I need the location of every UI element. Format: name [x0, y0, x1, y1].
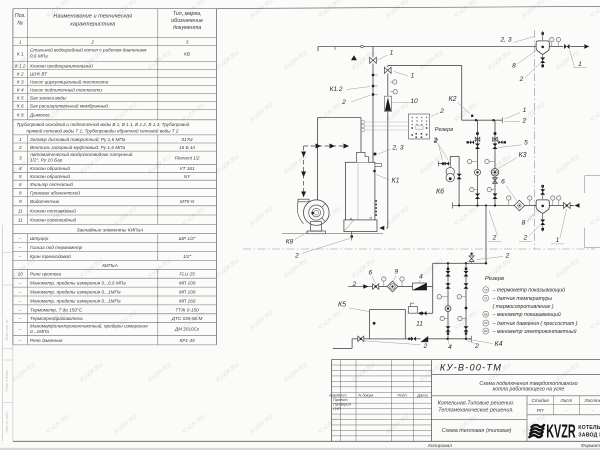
svg-text:ДМ 2010Сг: ДМ 2010Сг	[174, 327, 200, 332]
svg-text:KVZR.RU: KVZR.RU	[555, 49, 581, 72]
svg-text:1: 1	[556, 237, 560, 244]
svg-text:2: 2	[352, 281, 357, 288]
svg-text:0,6 МПа: 0,6 МПа	[30, 53, 48, 58]
svg-text:К1: К1	[391, 178, 399, 185]
svg-text:5: 5	[524, 140, 528, 147]
svg-text:Резерв: Резерв	[435, 127, 453, 133]
svg-text:KVZR.RU: KVZR.RU	[487, 153, 513, 176]
svg-text:KVZR.RU: KVZR.RU	[283, 257, 309, 280]
svg-text:10: 10	[410, 98, 418, 105]
svg-text:3: 3	[186, 39, 189, 44]
svg-text:VT 161: VT 161	[180, 166, 196, 171]
svg-text:2: 2	[18, 145, 22, 150]
svg-text:N докум: N докум	[358, 392, 373, 397]
svg-text:6: 6	[368, 270, 372, 277]
svg-text:1: 1	[390, 50, 394, 57]
svg-text:К6: К6	[436, 189, 444, 196]
svg-text:обозначение: обозначение	[171, 18, 203, 24]
svg-text:– термометр показывающий: – термометр показывающий	[492, 287, 566, 294]
svg-text:KVZR.RU: KVZR.RU	[589, 309, 600, 332]
svg-text:котла работающего на угле: котла работающего на угле	[493, 387, 565, 393]
svg-text:5: 5	[19, 174, 22, 179]
svg-text:KVZR.RU: KVZR.RU	[453, 0, 479, 20]
svg-text:KVZR: KVZR	[546, 421, 576, 442]
svg-text:Закладные элементы КИПиА: Закладные элементы КИПиА	[77, 227, 144, 233]
svg-text:Клапан предохранительный: Клапан предохранительный	[30, 62, 93, 68]
svg-text:МП 100: МП 100	[179, 281, 196, 286]
svg-text:KVZR.RU: KVZR.RU	[317, 413, 343, 436]
svg-text:NY: NY	[184, 174, 191, 179]
svg-text:МП 160: МП 160	[179, 298, 196, 303]
svg-text:KVZR.RU: KVZR.RU	[521, 0, 547, 20]
svg-text:2: 2	[523, 235, 528, 242]
svg-text:1: 1	[411, 73, 415, 80]
svg-text:KVZR.RU: KVZR.RU	[249, 101, 275, 124]
svg-text:Стадия: Стадия	[532, 398, 550, 403]
svg-text:2: 2	[433, 138, 438, 145]
svg-text:KVZR.RU: KVZR.RU	[45, 413, 71, 436]
svg-text:К 1.2: К 1.2	[15, 63, 26, 68]
svg-text:Термометр, Т до 150°С: Термометр, Т до 150°С	[30, 307, 83, 312]
svg-text:1/2": 1/2"	[183, 254, 192, 259]
svg-text:KVZR.RU: KVZR.RU	[0, 205, 3, 228]
svg-text:Манометр, пределы измерения: Манометр, пределы измерения 0...1МПа	[30, 289, 121, 294]
svg-text:KVZR.RU: KVZR.RU	[317, 101, 343, 124]
svg-text:ШР 1/2": ШР 1/2"	[179, 236, 196, 241]
svg-text:– датчик температуры: – датчик температуры	[492, 296, 553, 302]
svg-text:9: 9	[394, 269, 398, 276]
svg-text:Стальной водогрейный котел с р: Стальной водогрейный котел с рабочим дав…	[30, 47, 147, 53]
svg-text:–: –	[18, 289, 22, 294]
svg-text:ШУК ВТ: ШУК ВТ	[30, 71, 48, 76]
svg-text:KVZR.RU: KVZR.RU	[181, 413, 207, 436]
svg-text:Листов: Листов	[583, 398, 600, 403]
svg-text:Гильза под термометр: Гильза под термометр	[30, 245, 83, 250]
svg-text:Резерв: Резерв	[485, 276, 504, 282]
svg-text:2: 2	[519, 76, 524, 83]
svg-text:Штуцер: Штуцер	[30, 236, 49, 241]
svg-text:Бак расширительный мембранный: Бак расширительный мембранный	[30, 102, 108, 108]
svg-text:ДТС 035-50 М: ДТС 035-50 М	[171, 316, 203, 321]
svg-text:9: 9	[19, 199, 22, 204]
svg-text:Подп. и дата: Подп. и дата	[5, 370, 9, 391]
svg-text:KVZR.RU: KVZR.RU	[147, 361, 173, 384]
svg-text:KVZR.RU: KVZR.RU	[419, 153, 445, 176]
svg-text:2, 3: 2, 3	[392, 145, 404, 152]
svg-text:KVZR.RU: KVZR.RU	[79, 361, 105, 384]
svg-text:4: 4	[19, 166, 22, 171]
svg-text:Кран трехходовой: Кран трехходовой	[30, 253, 71, 259]
svg-text:1: 1	[523, 107, 527, 114]
svg-text:2: 2	[492, 235, 497, 242]
svg-text:К 5: К 5	[17, 95, 24, 100]
svg-text:Схема тепловая (типовая): Схема тепловая (типовая)	[442, 428, 512, 434]
svg-text:Затвор дисковый поворотный; Р: Затвор дисковый поворотный; Ру 1,6 МПа	[30, 136, 126, 142]
svg-text:ТТЖ 0-150: ТТЖ 0-150	[175, 307, 199, 312]
svg-text:KVZR.RU: KVZR.RU	[317, 0, 343, 20]
svg-text:KVZR.RU: KVZR.RU	[385, 0, 411, 20]
svg-text:КОТЕЛЬНЫ: КОТЕЛЬНЫ	[578, 425, 600, 431]
svg-text:2: 2	[90, 39, 94, 44]
svg-text:Клапан обратный: Клапан обратный	[30, 173, 70, 179]
svg-text:КР1-35: КР1-35	[179, 338, 195, 343]
svg-text:Тип, марка,: Тип, марка,	[173, 11, 202, 17]
svg-text:KVZR.RU: KVZR.RU	[283, 361, 309, 384]
svg-text:– манометр показывающий: – манометр показывающий	[492, 311, 561, 318]
svg-text:К4: К4	[494, 341, 502, 348]
svg-text:№: №	[17, 20, 23, 26]
svg-text:2: 2	[522, 118, 527, 125]
svg-text:–: –	[18, 338, 22, 343]
svg-text:Манометрэлектроконтактный, пр: Манометрэлектроконтактный, пределы измер…	[30, 322, 148, 328]
svg-text:KVZR.RU: KVZR.RU	[0, 101, 3, 124]
svg-text:Манометр, пределы измерения: Манометр, пределы измерения 0...0,6 МПа	[30, 281, 126, 286]
svg-text:– манометр электроконтактный: – манометр электроконтактный	[492, 328, 577, 335]
svg-text:2: 2	[341, 99, 346, 106]
svg-text:Подп.: Подп.	[397, 392, 407, 397]
svg-text:KVZR.RU: KVZR.RU	[215, 153, 241, 176]
svg-text:KVZR.RU: KVZR.RU	[351, 361, 377, 384]
svg-text:Клапан обратный: Клапан обратный	[30, 165, 70, 171]
svg-text:KVZR.RU: KVZR.RU	[351, 257, 377, 280]
svg-text:ГИП: ГИП	[333, 406, 341, 411]
svg-text:–: –	[18, 307, 22, 312]
svg-text:МЕ: МЕ	[484, 329, 488, 333]
svg-text:Водосчетчик: Водосчетчик	[30, 199, 60, 204]
svg-text:РП: РП	[537, 408, 544, 414]
svg-text:KVZR.RU: KVZR.RU	[0, 0, 3, 20]
svg-text:–: –	[18, 254, 22, 259]
svg-text:11: 11	[416, 321, 423, 328]
svg-text:Манометр, пределы измерения: Манометр, пределы измерения 0...1МПа	[30, 298, 121, 303]
svg-text:К 6: К 6	[17, 103, 24, 108]
svg-text:Термопреобразователь: Термопреобразователь	[30, 316, 84, 321]
svg-text:Грязевик абонентский: Грязевик абонентский	[30, 189, 80, 195]
svg-text:К 1: К 1	[17, 51, 24, 56]
svg-text:–: –	[18, 316, 22, 321]
svg-text:KVZR.RU: KVZR.RU	[181, 205, 207, 228]
svg-text:4: 4	[448, 344, 452, 351]
svg-text:Тепломеханические решения.: Тепломеханические решения.	[438, 407, 513, 413]
svg-text:–: –	[18, 245, 22, 250]
svg-text:8: 8	[19, 190, 22, 195]
svg-text:KVZR.RU: KVZR.RU	[589, 205, 600, 228]
svg-text:KVZR.RU: KVZR.RU	[283, 49, 309, 72]
svg-text:Наименование и техническая: Наименование и техническая	[53, 14, 132, 20]
svg-text:KVZR.RU: KVZR.RU	[249, 413, 275, 436]
svg-text:характеристика: характеристика	[69, 22, 115, 28]
svg-text:Flexvent 1/2: Flexvent 1/2	[175, 156, 200, 161]
svg-text:ТВ: ТВ	[484, 288, 488, 292]
svg-text:К3: К3	[518, 152, 526, 159]
svg-text:К 3: К 3	[17, 79, 24, 84]
svg-text:документа: документа	[173, 25, 201, 31]
svg-text:KVZR.RU: KVZR.RU	[249, 0, 275, 20]
svg-text:6: 6	[19, 182, 22, 187]
svg-text:Лист: Лист	[559, 398, 572, 403]
svg-text:KVZR.RU: KVZR.RU	[249, 309, 275, 332]
svg-text:KVZR.RU: KVZR.RU	[419, 49, 445, 72]
svg-text:15 Б 1п: 15 Б 1п	[179, 145, 195, 150]
svg-text:ТЕ: ТЕ	[484, 296, 488, 300]
svg-text:– датчик давления ( прессост: – датчик давления ( прессостат )	[492, 321, 578, 327]
svg-text:2, 3: 2, 3	[500, 37, 512, 44]
svg-text:2: 2	[505, 253, 510, 260]
svg-text:Клапан соленоидный: Клапан соленоидный	[30, 217, 77, 223]
svg-text:KVZR.RU: KVZR.RU	[215, 361, 241, 384]
svg-text:Фильтр сетчатый: Фильтр сетчатый	[30, 181, 73, 187]
svg-text:11: 11	[18, 218, 23, 223]
svg-text:KVZR.RU: KVZR.RU	[113, 205, 139, 228]
svg-text:Реле протока: Реле протока	[30, 272, 62, 277]
svg-text:8: 8	[522, 220, 526, 227]
svg-text:KVZR.RU: KVZR.RU	[215, 257, 241, 280]
svg-text:KVZR.RU: KVZR.RU	[181, 101, 207, 124]
svg-text:Поз.: Поз.	[15, 13, 26, 19]
svg-text:11: 11	[18, 208, 23, 213]
svg-text:2: 2	[294, 253, 299, 260]
svg-text:KVZR.RU: KVZR.RU	[113, 413, 139, 436]
svg-text:KVZR.RU: KVZR.RU	[147, 49, 173, 72]
svg-text:2: 2	[423, 343, 428, 350]
svg-text:KVZR.RU: KVZR.RU	[487, 49, 513, 72]
svg-text:К5: К5	[338, 302, 346, 309]
svg-text:К1.2: К1.2	[329, 86, 342, 93]
svg-text:( термосопротивление ): ( термосопротивление )	[493, 304, 554, 310]
svg-text:-: -	[566, 409, 568, 414]
svg-text:0...1МПа: 0...1МПа	[30, 329, 49, 334]
svg-text:4: 4	[419, 274, 423, 281]
svg-text:КУ-В-00-ТМ: КУ-В-00-ТМ	[440, 362, 502, 372]
svg-text:К2: К2	[448, 96, 456, 103]
svg-text:KVZR.RU: KVZR.RU	[215, 49, 241, 72]
svg-text:1: 1	[578, 61, 582, 68]
svg-text:К8: К8	[286, 239, 294, 246]
svg-text:МТК-N: МТК-N	[180, 199, 195, 204]
svg-text:Вентиль запорный муфтовый; Ру: Вентиль запорный муфтовый; Ру 1,6 МПа	[30, 144, 126, 150]
svg-text:KVZR.RU: KVZR.RU	[385, 413, 411, 436]
svg-text:KVZR.RU: KVZR.RU	[555, 153, 581, 176]
svg-text:прямой сетевой воды Т 1; Труб: прямой сетевой воды Т 1; Трубопроводы об…	[27, 127, 179, 133]
svg-text:2: 2	[474, 343, 479, 350]
svg-text:KVZR.RU: KVZR.RU	[555, 257, 581, 280]
svg-text:Автоматический воздухоотводчи: Автоматический воздухоотводчик латунный	[29, 151, 133, 157]
svg-text:Клапан поплавковый: Клапан поплавковый	[30, 207, 76, 213]
svg-text:Бак запаса воды: Бак запаса воды	[30, 95, 67, 100]
svg-text:Инв. № подл.: Инв. № подл.	[5, 411, 9, 432]
svg-text:–: –	[18, 281, 22, 286]
svg-text:10: 10	[18, 272, 24, 277]
svg-text:МП 100: МП 100	[179, 289, 196, 294]
svg-text:2: 2	[439, 108, 444, 115]
svg-text:KVZR.RU: KVZR.RU	[11, 361, 37, 384]
svg-text:FLU 25: FLU 25	[179, 272, 195, 277]
svg-text:1/2", Ру 10 Бар: 1/2", Ру 10 Бар	[30, 158, 63, 163]
svg-text:-: -	[592, 409, 594, 414]
svg-text:Взам. инв. №: Взам. инв. №	[5, 319, 9, 340]
svg-text:КИПиА: КИПиА	[102, 263, 118, 269]
svg-text:Котельная.Типовые решения.: Котельная.Типовые решения.	[438, 401, 515, 407]
svg-text:КВ: КВ	[184, 52, 191, 58]
svg-text:Реле давления: Реле давления	[30, 338, 63, 343]
svg-text:РЕ: РЕ	[484, 321, 488, 325]
svg-text:KVZR.RU: KVZR.RU	[453, 205, 479, 228]
svg-text:ЗАВОД Р: ЗАВОД Р	[578, 433, 600, 439]
svg-text:KVZR.RU: KVZR.RU	[317, 309, 343, 332]
svg-text:–: –	[18, 298, 22, 303]
svg-text:К 8: К 8	[17, 113, 24, 118]
svg-text:017w: 017w	[181, 137, 193, 142]
svg-text:МВ: МВ	[484, 312, 488, 316]
svg-text:KVZR.RU: KVZR.RU	[113, 101, 139, 124]
svg-text:1: 1	[19, 39, 22, 44]
svg-text:Дымосос: Дымосос	[29, 113, 51, 118]
svg-text:К 4: К 4	[17, 87, 24, 92]
svg-text:3: 3	[19, 156, 22, 161]
svg-text:Насос подпиточный теплосети: Насос подпиточный теплосети	[30, 86, 102, 92]
svg-text:6: 6	[501, 179, 505, 186]
svg-text:Трубопровод исходной и подпито: Трубопровод исходной и подпиточной воды …	[17, 121, 190, 127]
svg-text:–: –	[18, 236, 22, 241]
svg-text:KVZR.RU: KVZR.RU	[249, 205, 275, 228]
svg-text:KVZR.RU: KVZR.RU	[589, 0, 600, 20]
svg-text:KVZR.RU: KVZR.RU	[589, 101, 600, 124]
svg-text:К 2: К 2	[17, 71, 24, 76]
svg-text:KVZR.RU: KVZR.RU	[385, 205, 411, 228]
svg-text:8: 8	[512, 63, 516, 70]
svg-text:1: 1	[19, 137, 22, 142]
svg-text:Насос циркуляционный теплосети: Насос циркуляционный теплосети	[30, 78, 109, 84]
svg-text:Дата: Дата	[416, 392, 428, 397]
svg-text:–: –	[18, 327, 22, 332]
